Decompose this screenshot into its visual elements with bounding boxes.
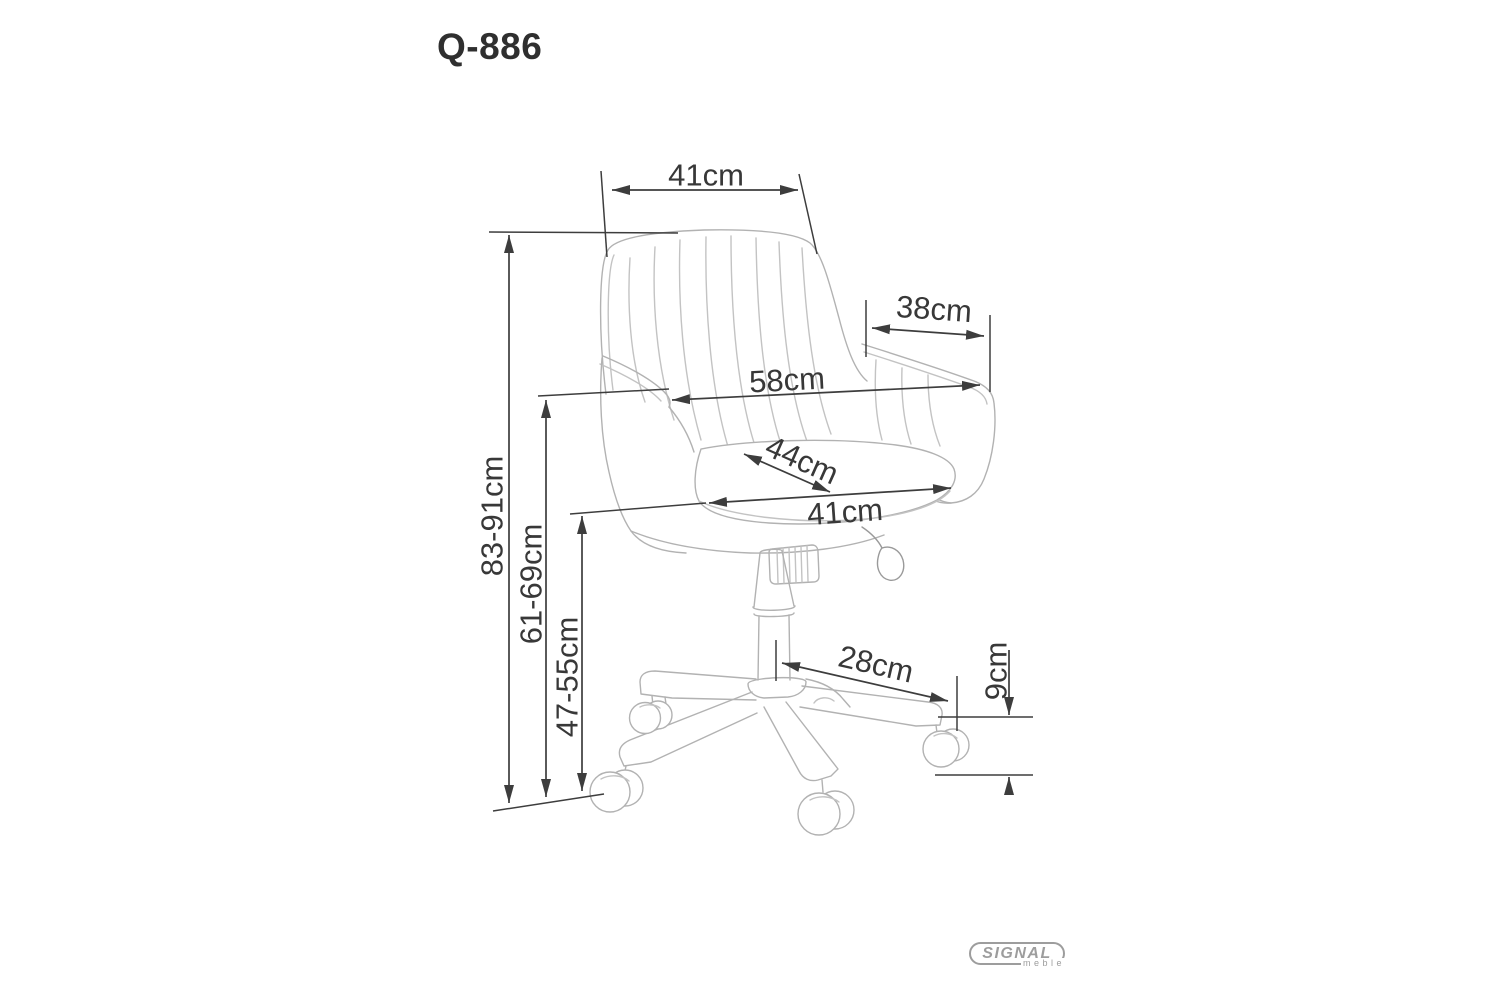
dim-label-seat-width: 41cm — [806, 494, 884, 530]
chair-gas-lift — [753, 545, 819, 680]
dim-label-backrest-width: 41cm — [668, 160, 744, 191]
caster-right — [923, 729, 969, 767]
chair-base-star — [590, 671, 969, 835]
dim-line-overall-width — [672, 385, 980, 400]
spec-sheet: Q-886 41cm 38cm 58cm 44cm 41cm 83-91cm 6… — [0, 0, 1500, 1000]
caster-back-left — [630, 701, 673, 734]
caster-front-left — [590, 770, 643, 812]
dim-label-caster-height: 9cm — [981, 642, 1012, 701]
product-code: Q-886 — [437, 26, 542, 68]
dim-label-seat-height: 47-55cm — [552, 617, 583, 738]
chair-backrest — [601, 230, 867, 452]
dim-label-armrest-depth: 38cm — [895, 291, 973, 327]
dim-label-overall-width: 58cm — [748, 363, 825, 398]
chair-armrest-left — [600, 356, 694, 553]
chair-dimension-drawing — [0, 0, 1500, 1000]
caster-front-center — [798, 791, 854, 835]
dim-label-overall-height: 83-91cm — [477, 456, 508, 577]
brand-logo: SIGNAL meble — [969, 942, 1069, 974]
brand-subtitle: meble — [1021, 958, 1067, 969]
dim-line-armrest-depth — [872, 328, 984, 336]
dim-label-armrest-height: 61-69cm — [516, 524, 547, 645]
